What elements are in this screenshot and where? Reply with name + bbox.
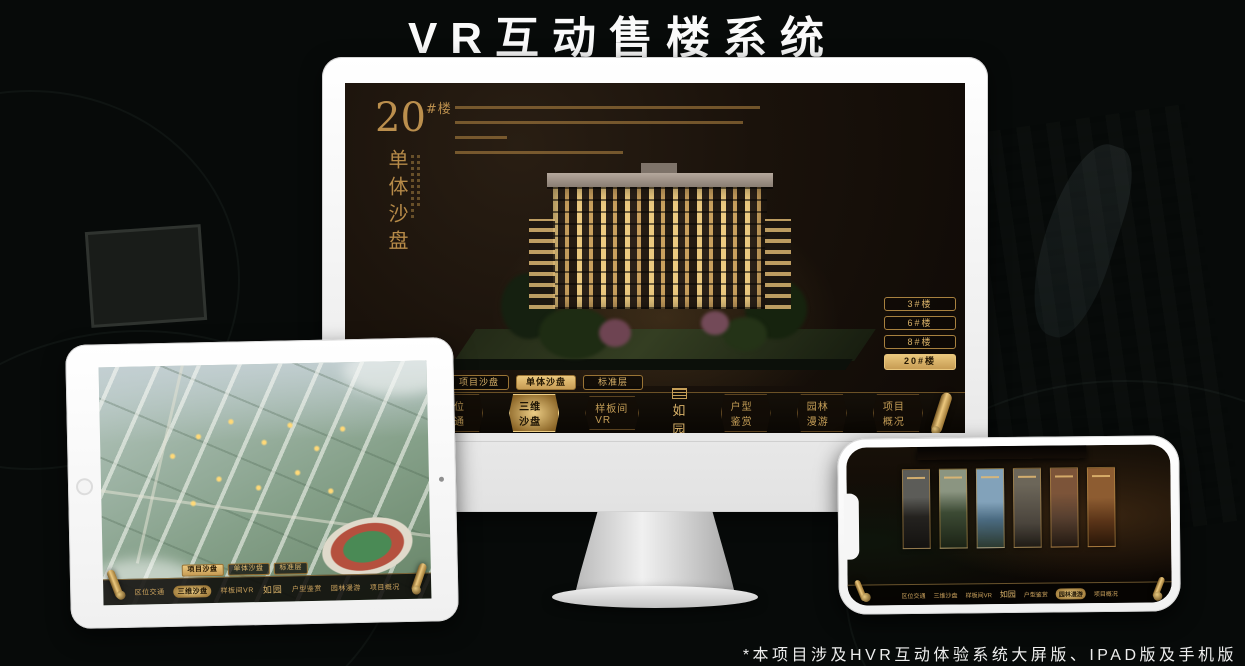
nav-item-unit-plans[interactable]: 户型鉴赏 xyxy=(721,394,771,432)
nav-item-3d-sandtable[interactable]: 三维沙盘 xyxy=(933,590,957,599)
sandtable-tabs: 项目沙盘 单体沙盘 标准层 xyxy=(449,375,643,390)
nav-item-location[interactable]: 区位交通 xyxy=(901,590,925,599)
tablet-nav-bar: 区位交通 三维沙盘 样板间VR 如园 户型鉴赏 园林漫游 项目概况 xyxy=(103,572,431,605)
phone-device: 区位交通 三维沙盘 样板间VR 如园 户型鉴赏 园林漫游 项目概况 xyxy=(837,435,1181,615)
section-title-vertical: 单体沙盘 xyxy=(383,149,412,257)
nav-item-showroom-vr[interactable]: 样板间VR xyxy=(221,585,254,596)
ceiling-beam xyxy=(917,445,1086,460)
panel-label xyxy=(1018,476,1036,478)
tablet-screen: 项目沙盘 单体沙盘 标准层 区位交通 三维沙盘 样板间VR 如园 户型鉴赏 园林… xyxy=(99,361,432,606)
nav-item-label: 园林漫游 xyxy=(797,394,847,432)
tab-project-sandtable[interactable]: 项目沙盘 xyxy=(449,375,509,390)
tree xyxy=(723,317,767,351)
tablet-device: 项目沙盘 单体沙盘 标准层 区位交通 三维沙盘 样板间VR 如园 户型鉴赏 园林… xyxy=(65,337,459,629)
seal-icon xyxy=(672,388,687,399)
brand-logo-text: 如园 xyxy=(1000,588,1016,599)
floor-button-group: 3#楼 6#楼 8#楼 20#楼 xyxy=(884,297,956,375)
footnote: *本项目涉及HVR互动体验系统大屏版、IPAD版及手机版 xyxy=(743,641,1237,665)
panel-label xyxy=(1055,475,1073,477)
floor-button-3[interactable]: 3#楼 xyxy=(884,297,956,311)
nav-item-3d-sandtable[interactable]: 三维沙盘 xyxy=(173,585,211,598)
nav-item-3d-sandtable[interactable]: 三维沙盘 xyxy=(509,394,559,432)
home-button[interactable] xyxy=(76,478,93,495)
floor-button-20[interactable]: 20#楼 xyxy=(884,354,956,370)
building-suffix: #楼 xyxy=(426,102,452,117)
description-line xyxy=(455,151,623,154)
scroll-icon[interactable] xyxy=(930,391,953,433)
gallery-panel-facade[interactable] xyxy=(1013,468,1042,548)
floor-button-6[interactable]: 6#楼 xyxy=(884,316,956,330)
title-caption-decoration xyxy=(417,155,420,207)
monitor-stand xyxy=(575,512,735,594)
title-caption-decoration xyxy=(411,155,414,219)
nav-item-location[interactable]: 区位交通 xyxy=(135,587,165,598)
tab-single-sandtable[interactable]: 单体沙盘 xyxy=(227,563,269,576)
nav-item-label: 三维沙盘 xyxy=(509,394,559,432)
tab-project-sandtable[interactable]: 项目沙盘 xyxy=(181,564,223,577)
nav-item-label: 样板间VR xyxy=(585,396,639,430)
flowering-tree xyxy=(599,319,631,347)
nav-item-showroom-vr[interactable]: 样板间VR xyxy=(585,396,639,430)
nav-item-garden-tour[interactable]: 园林漫游 xyxy=(1056,588,1086,599)
phone-notch xyxy=(844,494,860,560)
building-number: 20 xyxy=(375,95,426,141)
tab-standard-floor[interactable]: 标准层 xyxy=(583,375,643,390)
certificate-plaque xyxy=(85,224,207,328)
nav-item-garden-tour[interactable]: 园林漫游 xyxy=(331,582,361,593)
panel-label xyxy=(907,477,925,479)
gallery-panel-courtyard[interactable] xyxy=(939,468,968,548)
nav-item-project-overview[interactable]: 项目概况 xyxy=(873,394,923,432)
camera-icon xyxy=(439,477,444,482)
floor-button-8[interactable]: 8#楼 xyxy=(884,335,956,349)
description-line xyxy=(455,121,743,124)
gallery-panel-building-sky[interactable] xyxy=(976,468,1005,548)
panel-label xyxy=(981,476,999,478)
building-wing xyxy=(765,219,791,309)
nav-item-garden-tour[interactable]: 园林漫游 xyxy=(797,394,847,432)
description-line xyxy=(455,136,507,139)
brand-logo-text: 如园 xyxy=(263,583,283,596)
gallery-panels xyxy=(902,467,1116,549)
flowering-tree xyxy=(701,311,729,335)
nav-item-label: 项目概况 xyxy=(873,394,923,432)
tab-standard-floor[interactable]: 标准层 xyxy=(273,562,308,575)
brand-logo-text: 如园 xyxy=(668,400,692,433)
panel-label xyxy=(1092,475,1110,477)
building-3d-render[interactable] xyxy=(495,161,825,376)
monitor-base xyxy=(552,586,758,608)
nav-item-unit-plans[interactable]: 户型鉴赏 xyxy=(1024,589,1048,598)
tab-single-sandtable[interactable]: 单体沙盘 xyxy=(516,375,576,390)
scroll-icon-glyph xyxy=(930,391,953,433)
nav-item-project-overview[interactable]: 项目概况 xyxy=(370,582,400,593)
building-roof xyxy=(547,173,773,187)
description-line xyxy=(455,106,760,109)
gallery-panel-interior[interactable] xyxy=(1087,467,1116,547)
nav-item-project-overview[interactable]: 项目概况 xyxy=(1094,588,1118,597)
gallery-panel-sketch[interactable] xyxy=(902,469,931,549)
building-wing xyxy=(529,219,555,309)
nav-item-unit-plans[interactable]: 户型鉴赏 xyxy=(292,583,322,594)
brand-logo: 如园 xyxy=(668,388,692,433)
sandtable-platform-edge xyxy=(445,359,852,370)
phone-nav-bar: 区位交通 三维沙盘 样板间VR 如园 户型鉴赏 园林漫游 项目概况 xyxy=(848,581,1172,605)
nav-item-label: 户型鉴赏 xyxy=(721,394,771,432)
building-facade xyxy=(553,187,767,309)
gallery-panel-autumn[interactable] xyxy=(1050,467,1079,547)
building-title: 20#楼 xyxy=(375,95,452,141)
nav-item-showroom-vr[interactable]: 样板间VR xyxy=(965,590,991,599)
panel-label xyxy=(944,476,962,478)
phone-screen: 区位交通 三维沙盘 样板间VR 如园 户型鉴赏 园林漫游 项目概况 xyxy=(846,444,1172,605)
